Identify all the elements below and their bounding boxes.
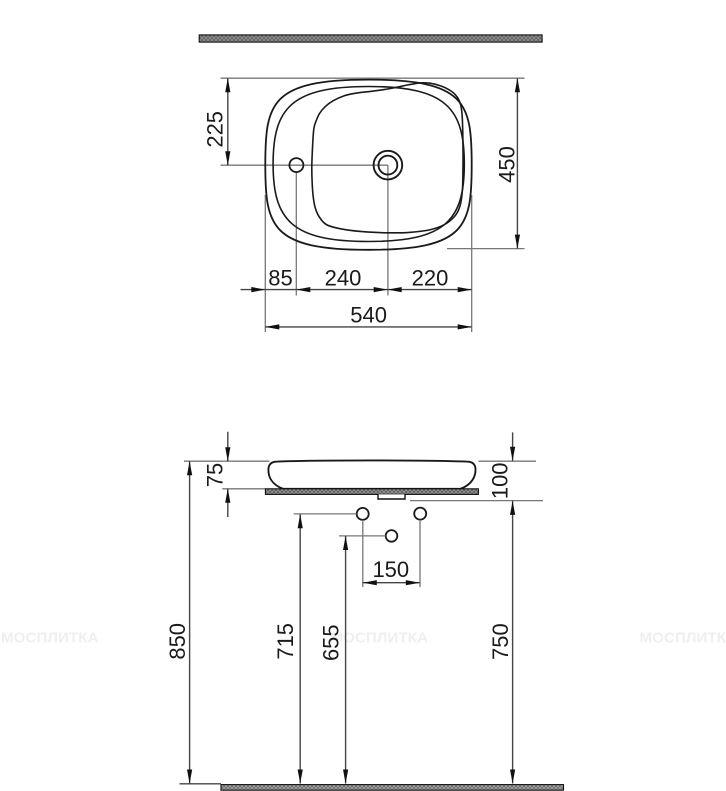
svg-text:150: 150 [372, 557, 409, 582]
svg-text:МОСПЛИТКА: МОСПЛИТКА [1, 630, 99, 647]
svg-text:240: 240 [325, 266, 362, 291]
svg-text:75: 75 [202, 463, 227, 487]
svg-text:225: 225 [203, 111, 228, 148]
svg-text:655: 655 [319, 624, 344, 661]
svg-text:850: 850 [165, 623, 190, 660]
svg-text:750: 750 [488, 623, 513, 660]
svg-text:85: 85 [268, 266, 292, 291]
svg-text:100: 100 [488, 462, 513, 499]
svg-text:715: 715 [273, 623, 298, 660]
svg-text:540: 540 [350, 302, 387, 327]
svg-text:450: 450 [495, 146, 520, 183]
svg-text:МОСПЛИТКА: МОСПЛИТКА [640, 630, 726, 647]
svg-text:220: 220 [412, 266, 449, 291]
